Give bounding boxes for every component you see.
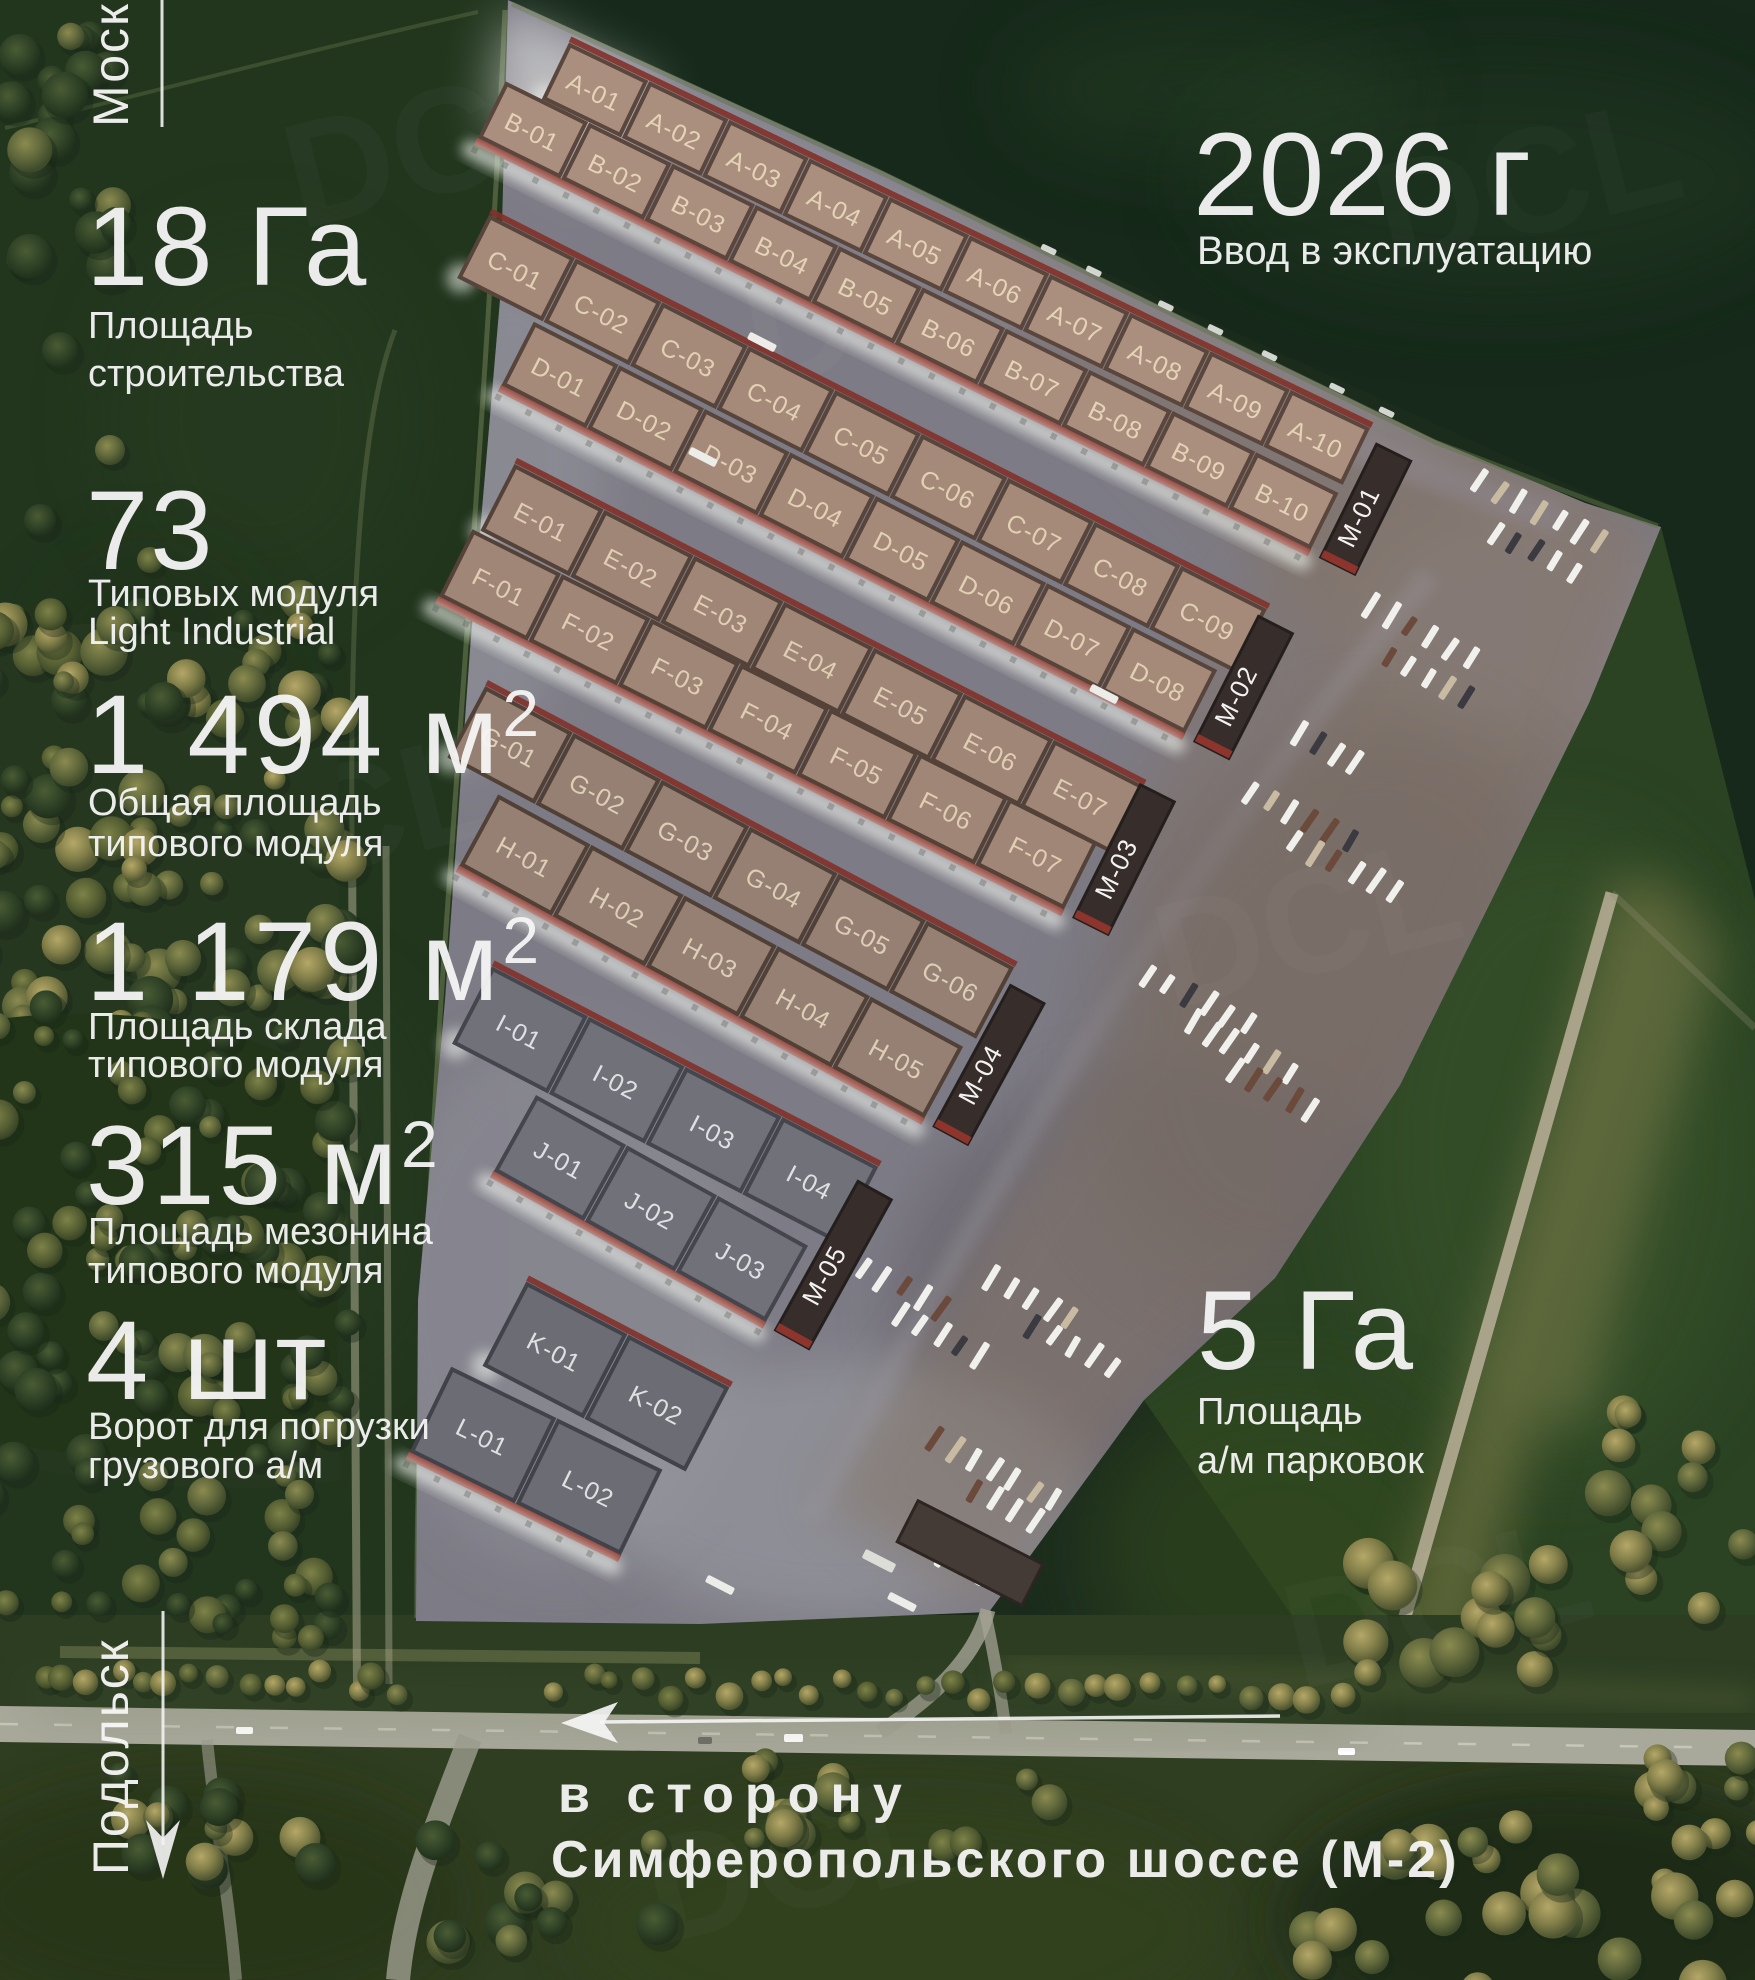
svg-text:2026 г: 2026 г [1193, 109, 1531, 241]
svg-text:Площадь: Площадь [88, 305, 253, 347]
svg-text:Площадь склада: Площадь склада [88, 1006, 388, 1048]
svg-text:Площадь: Площадь [1197, 1391, 1362, 1433]
svg-text:Ворот для погрузки: Ворот для погрузки [88, 1406, 430, 1448]
svg-text:в сторону: в сторону [558, 1766, 913, 1824]
svg-text:1 494 м2: 1 494 м2 [86, 672, 543, 797]
svg-text:315 м2: 315 м2 [86, 1103, 442, 1228]
svg-text:Общая площадь: Общая площадь [88, 782, 382, 824]
svg-text:строительства: строительства [88, 353, 345, 395]
svg-text:грузового а/м: грузового а/м [88, 1445, 323, 1487]
svg-text:типового модуля: типового модуля [88, 1044, 383, 1086]
svg-text:Ввод в эксплуатацию: Ввод в эксплуатацию [1197, 229, 1592, 273]
svg-text:18 Га: 18 Га [86, 184, 368, 309]
svg-text:Площадь мезонина: Площадь мезонина [88, 1211, 434, 1253]
svg-text:а/м парковок: а/м парковок [1197, 1440, 1424, 1482]
svg-text:Подольск: Подольск [83, 1638, 139, 1875]
svg-text:Типовых модуля: Типовых модуля [88, 573, 379, 615]
svg-text:типового модуля: типового модуля [88, 1250, 383, 1292]
svg-text:Москва: Москва [83, 0, 139, 127]
svg-text:Light Industrial: Light Industrial [88, 611, 335, 653]
svg-text:4 шт: 4 шт [86, 1298, 329, 1423]
svg-text:типового модуля: типового модуля [88, 823, 383, 865]
svg-text:5 Га: 5 Га [1197, 1268, 1415, 1393]
svg-text:Симферопольского шоссе (М-2): Симферопольского шоссе (М-2) [551, 1831, 1459, 1889]
